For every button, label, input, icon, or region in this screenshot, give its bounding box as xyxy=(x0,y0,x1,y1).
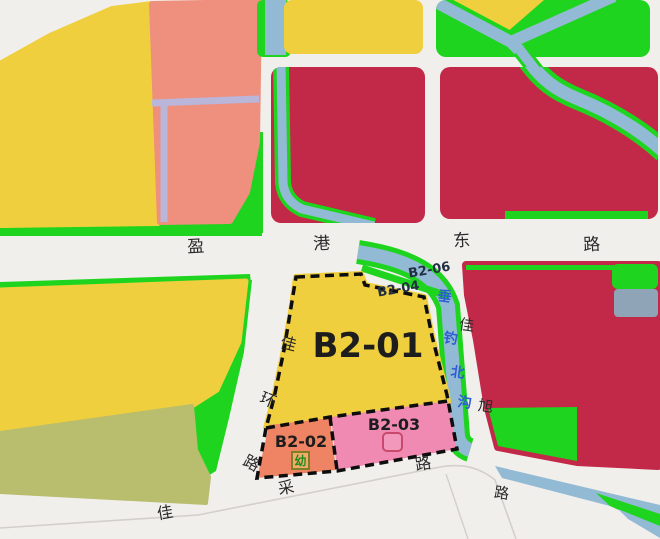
parcel-label-b2-02: B2-02 xyxy=(275,432,327,451)
parcel-grayblue-corner xyxy=(614,289,658,317)
waterway-label-char-2: 钓 xyxy=(443,329,459,348)
road-label-jiaxu-char-1: 佳 xyxy=(458,315,475,335)
waterway-label-char-1: 垂 xyxy=(437,287,453,306)
road-label-jiaxu-char-2: 旭 xyxy=(477,396,494,416)
road-label-yinggang-char-4: 路 xyxy=(583,235,601,256)
parcel-yellow-topmid xyxy=(284,0,423,54)
parcel-label-b2-03: B2-03 xyxy=(368,415,420,434)
waterway-label-char-3: 北 xyxy=(450,364,466,382)
road-label-yinggang-char-2: 港 xyxy=(313,234,331,255)
greenbelt-bottom-topright xyxy=(505,211,648,220)
road-label-yinggang-char-3: 东 xyxy=(453,231,471,252)
block-top-middle-yellow xyxy=(257,0,423,57)
parcel-label-b2-01: B2-01 xyxy=(313,326,424,366)
block-right-crimson xyxy=(466,264,658,466)
block-lower-left xyxy=(0,274,252,503)
waterway-label-char-4: 沟 xyxy=(457,393,473,412)
block-top-right-crimson xyxy=(440,60,660,220)
zoning-map: 盈 港 东 路 佳 环 路 佳 采 路 佳 旭 路 垂 钓 北 沟 B2-01 … xyxy=(0,0,660,539)
parcel-salmon-topleft xyxy=(152,2,259,222)
road-label-yinggang-char-1: 盈 xyxy=(187,237,205,258)
greenbelt-top-right-crimson xyxy=(466,265,614,270)
parcel-green-corner xyxy=(612,264,658,289)
zoning-map-canvas: 盈 港 东 路 佳 环 路 佳 采 路 佳 旭 路 垂 钓 北 沟 B2-01 … xyxy=(0,0,660,539)
water-channel-north xyxy=(265,0,286,55)
road-label-jiacai-char-3: 路 xyxy=(414,453,433,474)
school-icon xyxy=(383,433,402,451)
road-label-jiacai-char-1: 佳 xyxy=(156,502,175,523)
block-top-middle-crimson xyxy=(271,63,425,226)
divider-road-horizontal xyxy=(152,99,259,103)
road-label-jiaxu-char-3: 路 xyxy=(493,483,510,503)
road-label-jiacai-char-2: 采 xyxy=(277,477,296,498)
kindergarten-icon: 幼 xyxy=(294,453,306,468)
